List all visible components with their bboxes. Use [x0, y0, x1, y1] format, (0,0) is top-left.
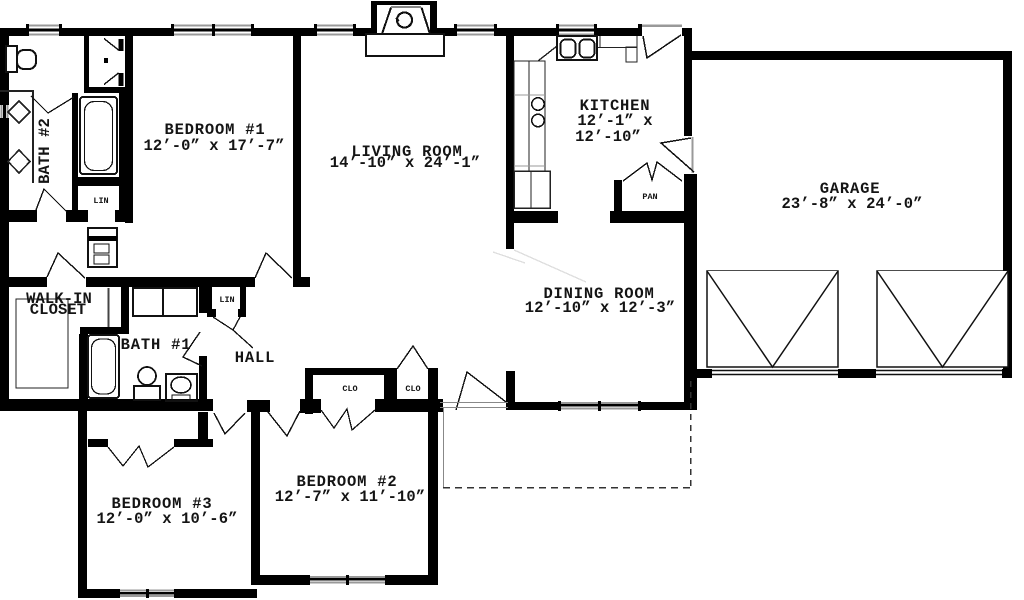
svg-text:CLOSET: CLOSET: [30, 301, 86, 319]
svg-text:LIN: LIN: [219, 295, 234, 305]
svg-text:CLO: CLO: [405, 384, 420, 394]
svg-text:BATH #1: BATH #1: [121, 336, 192, 354]
svg-text:12’-0” x 17’-7”: 12’-0” x 17’-7”: [143, 137, 284, 155]
svg-text:PAN: PAN: [642, 192, 657, 202]
svg-text:23’-8” x 24’-0”: 23’-8” x 24’-0”: [781, 195, 922, 213]
svg-text:CLO: CLO: [342, 384, 357, 394]
svg-text:LIN: LIN: [93, 196, 108, 206]
svg-text:12’-7” x 11’-10”: 12’-7” x 11’-10”: [275, 488, 425, 506]
svg-text:14’-10” x 24’-1”: 14’-10” x 24’-1”: [330, 154, 480, 172]
svg-text:12’-0” x 10’-6”: 12’-0” x 10’-6”: [96, 510, 237, 528]
svg-text:12’-10” x 12’-3”: 12’-10” x 12’-3”: [525, 299, 675, 317]
svg-text:HALL: HALL: [235, 349, 275, 367]
svg-text:BATH #2: BATH #2: [36, 118, 54, 184]
svg-text:12’-10”: 12’-10”: [575, 128, 641, 146]
